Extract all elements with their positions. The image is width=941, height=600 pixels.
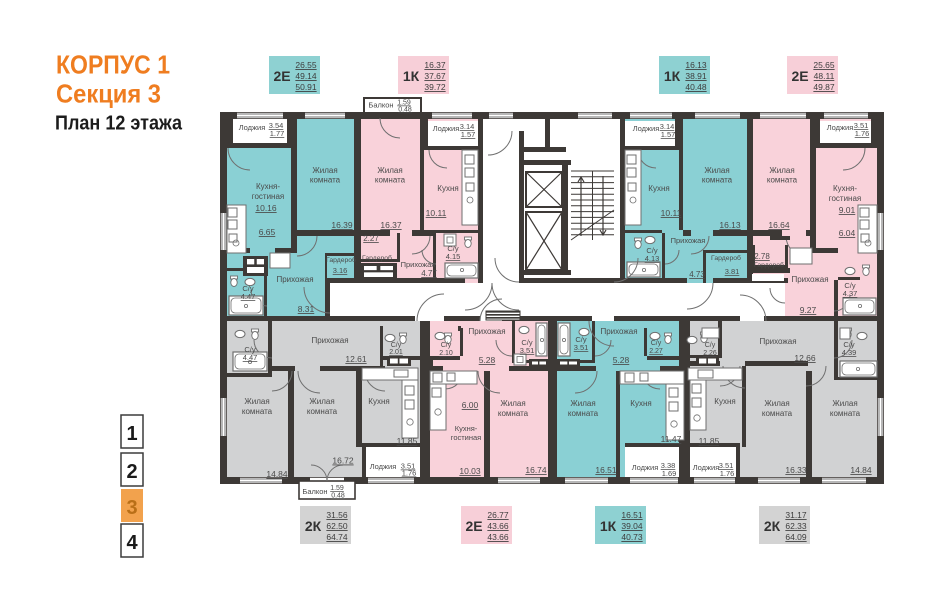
svg-text:Прихожая: Прихожая xyxy=(759,337,796,346)
svg-text:4: 4 xyxy=(126,532,138,554)
svg-text:4.47: 4.47 xyxy=(243,353,258,362)
svg-text:Жилая: Жилая xyxy=(764,399,789,408)
svg-text:12.66: 12.66 xyxy=(794,353,816,363)
svg-text:комната: комната xyxy=(767,176,798,185)
svg-text:Жилая: Жилая xyxy=(312,166,337,175)
svg-text:49.14: 49.14 xyxy=(295,71,317,81)
svg-text:С/у: С/у xyxy=(391,342,402,349)
svg-text:комната: комната xyxy=(830,409,861,418)
svg-text:62.50: 62.50 xyxy=(326,521,348,531)
svg-text:Кухня-: Кухня- xyxy=(256,182,280,191)
svg-text:комната: комната xyxy=(307,407,338,416)
svg-text:Секция 3: Секция 3 xyxy=(56,79,161,109)
svg-text:Прихожая: Прихожая xyxy=(401,260,436,269)
svg-text:Гардероб: Гардероб xyxy=(326,256,356,264)
svg-text:4.77: 4.77 xyxy=(421,269,437,278)
svg-text:Кухня: Кухня xyxy=(648,184,669,193)
svg-text:4.73: 4.73 xyxy=(689,270,705,279)
svg-text:3: 3 xyxy=(126,497,137,519)
svg-text:43.66: 43.66 xyxy=(487,521,509,531)
svg-text:3.51: 3.51 xyxy=(574,343,589,352)
svg-text:Жилая: Жилая xyxy=(309,397,334,406)
svg-text:10.16: 10.16 xyxy=(255,203,277,213)
svg-text:16.13: 16.13 xyxy=(719,220,741,230)
svg-text:4.15: 4.15 xyxy=(446,252,461,261)
svg-text:1.77: 1.77 xyxy=(270,129,285,138)
svg-text:16.74: 16.74 xyxy=(525,465,547,475)
svg-text:С/у: С/у xyxy=(705,342,716,349)
svg-text:62.33: 62.33 xyxy=(785,521,807,531)
svg-text:Лоджия: Лоджия xyxy=(370,462,397,471)
svg-text:2Е: 2Е xyxy=(465,518,482,534)
svg-text:2К: 2К xyxy=(305,518,322,534)
svg-text:3.81: 3.81 xyxy=(725,267,740,276)
svg-text:1К: 1К xyxy=(600,518,617,534)
svg-text:9.27: 9.27 xyxy=(800,305,817,315)
svg-text:2Е: 2Е xyxy=(791,68,808,84)
svg-text:Гардероб: Гардероб xyxy=(362,254,392,262)
svg-text:64.09: 64.09 xyxy=(785,532,807,542)
svg-text:38.91: 38.91 xyxy=(685,71,707,81)
svg-text:Жилая: Жилая xyxy=(377,166,402,175)
svg-text:1: 1 xyxy=(126,423,137,445)
svg-text:9.01: 9.01 xyxy=(839,205,856,215)
svg-text:6.04: 6.04 xyxy=(839,228,856,238)
svg-text:4.47: 4.47 xyxy=(241,292,256,301)
svg-text:2.78: 2.78 xyxy=(754,252,770,261)
svg-text:Кухня-: Кухня- xyxy=(833,184,857,193)
svg-text:С/у: С/у xyxy=(441,342,452,349)
svg-text:11.85: 11.85 xyxy=(397,436,418,446)
svg-text:Лоджия: Лоджия xyxy=(827,123,854,132)
svg-text:40.73: 40.73 xyxy=(621,532,643,542)
svg-text:гостиная: гостиная xyxy=(252,192,285,201)
svg-text:16.37: 16.37 xyxy=(380,220,402,230)
svg-text:25.65: 25.65 xyxy=(813,60,835,70)
svg-text:Лоджия: Лоджия xyxy=(632,463,659,472)
svg-text:31.17: 31.17 xyxy=(785,510,807,520)
svg-text:комната: комната xyxy=(498,409,529,418)
svg-text:16.51: 16.51 xyxy=(621,510,643,520)
svg-text:16.39: 16.39 xyxy=(331,220,353,230)
svg-text:Кухня: Кухня xyxy=(630,399,651,408)
svg-text:26.77: 26.77 xyxy=(487,510,509,520)
svg-text:16.33: 16.33 xyxy=(785,465,807,475)
svg-text:Прихожая: Прихожая xyxy=(468,327,505,336)
svg-text:40.48: 40.48 xyxy=(685,82,707,92)
svg-text:комната: комната xyxy=(762,409,793,418)
svg-text:5.28: 5.28 xyxy=(479,355,496,365)
svg-text:комната: комната xyxy=(310,176,341,185)
svg-text:1.57: 1.57 xyxy=(661,130,676,139)
svg-text:1.57: 1.57 xyxy=(461,130,476,139)
svg-text:1.76: 1.76 xyxy=(402,469,417,478)
svg-text:11.85: 11.85 xyxy=(699,436,720,446)
svg-text:2.27: 2.27 xyxy=(363,234,379,243)
svg-text:10.11: 10.11 xyxy=(661,208,682,218)
svg-text:50.91: 50.91 xyxy=(295,82,317,92)
svg-text:16.64: 16.64 xyxy=(768,220,790,230)
svg-text:8.31: 8.31 xyxy=(298,304,315,314)
svg-text:5.28: 5.28 xyxy=(613,355,630,365)
svg-text:6.00: 6.00 xyxy=(462,400,479,410)
svg-text:Жилая: Жилая xyxy=(500,399,525,408)
svg-text:Кухня: Кухня xyxy=(368,397,389,406)
svg-text:комната: комната xyxy=(702,176,733,185)
svg-text:64.74: 64.74 xyxy=(326,532,348,542)
svg-text:12.61: 12.61 xyxy=(345,354,367,364)
svg-text:3.51: 3.51 xyxy=(520,346,535,355)
svg-text:Лоджия: Лоджия xyxy=(633,124,660,133)
svg-text:1К: 1К xyxy=(403,68,420,84)
svg-text:Балкон: Балкон xyxy=(302,487,327,496)
svg-text:Жилая: Жилая xyxy=(570,399,595,408)
svg-text:16.37: 16.37 xyxy=(424,60,446,70)
svg-text:гостиная: гостиная xyxy=(451,433,482,442)
svg-text:Лоджия: Лоджия xyxy=(693,463,720,472)
svg-text:2.10: 2.10 xyxy=(439,350,453,357)
svg-text:49.87: 49.87 xyxy=(813,82,835,92)
svg-text:Прихожая: Прихожая xyxy=(600,327,637,336)
svg-text:6.65: 6.65 xyxy=(259,227,276,237)
svg-text:Кухня: Кухня xyxy=(437,184,458,193)
svg-text:2Е: 2Е xyxy=(273,68,290,84)
svg-text:Прихожая: Прихожая xyxy=(671,236,706,245)
svg-text:1.76: 1.76 xyxy=(720,469,735,478)
svg-text:2.01: 2.01 xyxy=(389,349,403,356)
svg-text:1.69: 1.69 xyxy=(662,469,677,478)
svg-text:1К: 1К xyxy=(664,68,681,84)
svg-text:С/у: С/у xyxy=(651,340,662,347)
svg-text:48.11: 48.11 xyxy=(814,71,835,81)
svg-text:0.48: 0.48 xyxy=(331,493,345,500)
svg-text:Кухня: Кухня xyxy=(714,397,735,406)
svg-text:39.04: 39.04 xyxy=(621,521,643,531)
svg-text:Жилая: Жилая xyxy=(704,166,729,175)
svg-text:2К: 2К xyxy=(764,518,781,534)
svg-text:Жилая: Жилая xyxy=(832,399,857,408)
svg-text:11.47: 11.47 xyxy=(661,434,682,444)
svg-text:2: 2 xyxy=(126,461,137,483)
svg-text:16.13: 16.13 xyxy=(685,60,707,70)
svg-text:16.51: 16.51 xyxy=(595,465,617,475)
svg-text:Жилая: Жилая xyxy=(244,397,269,406)
svg-text:План 12 этажа: План 12 этажа xyxy=(55,113,183,135)
svg-text:Кухня-: Кухня- xyxy=(455,424,478,433)
svg-text:37.67: 37.67 xyxy=(424,71,446,81)
svg-text:4.37: 4.37 xyxy=(843,289,858,298)
svg-text:31.56: 31.56 xyxy=(326,510,348,520)
svg-text:1.59: 1.59 xyxy=(330,485,344,492)
svg-text:гостиная: гостиная xyxy=(829,194,862,203)
svg-text:10.11: 10.11 xyxy=(426,208,447,218)
svg-text:26.55: 26.55 xyxy=(295,60,317,70)
svg-text:2.27: 2.27 xyxy=(649,348,663,355)
svg-text:комната: комната xyxy=(242,407,273,416)
svg-text:Лоджия: Лоджия xyxy=(239,123,266,132)
svg-text:комната: комната xyxy=(568,409,599,418)
svg-text:Прихожая: Прихожая xyxy=(276,275,313,284)
svg-text:Балкон: Балкон xyxy=(368,101,393,110)
svg-text:3.16: 3.16 xyxy=(333,266,348,275)
svg-text:2.26: 2.26 xyxy=(703,350,717,357)
svg-text:4.13: 4.13 xyxy=(645,254,660,263)
svg-text:Гардероб: Гардероб xyxy=(711,254,741,262)
svg-text:39.72: 39.72 xyxy=(424,82,446,92)
svg-text:Гардероб: Гардероб xyxy=(754,261,784,269)
svg-text:0.48: 0.48 xyxy=(398,107,412,114)
svg-text:14.84: 14.84 xyxy=(850,465,872,475)
svg-text:14.84: 14.84 xyxy=(266,469,288,479)
svg-text:10.03: 10.03 xyxy=(459,466,481,476)
svg-text:Прихожая: Прихожая xyxy=(791,275,828,284)
svg-text:16.72: 16.72 xyxy=(332,456,354,466)
svg-text:43.66: 43.66 xyxy=(487,532,509,542)
svg-text:КОРПУС 1: КОРПУС 1 xyxy=(56,50,170,80)
svg-text:4.39: 4.39 xyxy=(842,348,857,357)
svg-text:Прихожая: Прихожая xyxy=(311,336,348,345)
svg-text:1.59: 1.59 xyxy=(397,100,411,107)
svg-text:комната: комната xyxy=(375,176,406,185)
svg-text:1.76: 1.76 xyxy=(855,129,870,138)
svg-text:Лоджия: Лоджия xyxy=(433,124,460,133)
svg-text:Жилая: Жилая xyxy=(769,166,794,175)
